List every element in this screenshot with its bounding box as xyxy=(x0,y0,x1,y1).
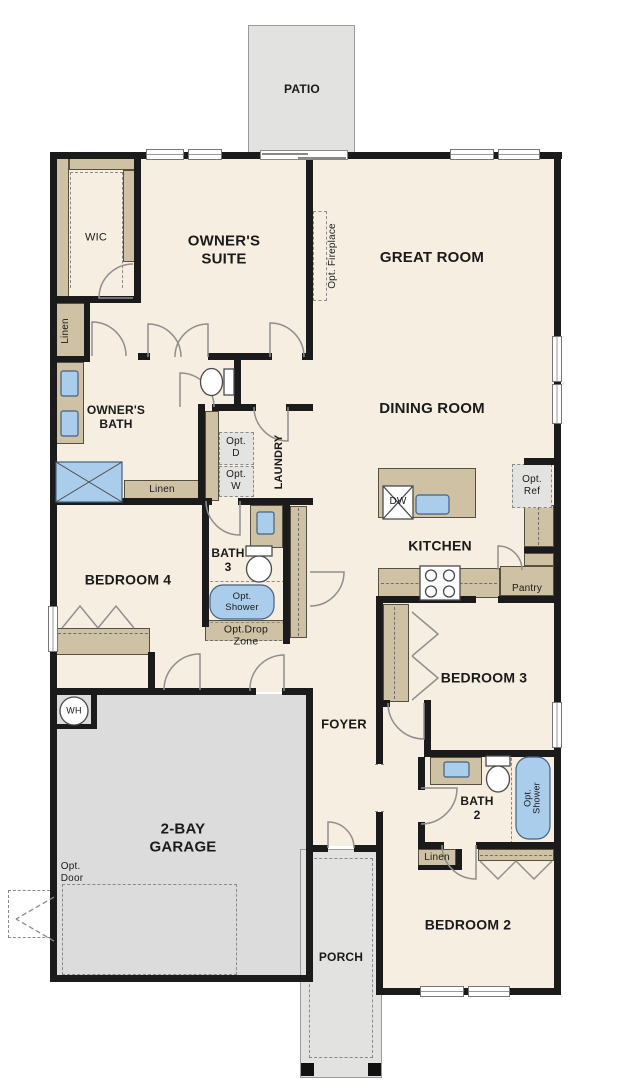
bifold-doors xyxy=(412,612,438,700)
sink xyxy=(257,512,274,534)
door-swing xyxy=(498,546,522,570)
opt-door-label: Opt. Door xyxy=(61,861,83,885)
toilet-tank xyxy=(246,546,272,556)
door-swing xyxy=(310,572,344,606)
great-room-label: GREAT ROOM xyxy=(380,249,484,267)
dishwasher-label: DW xyxy=(389,496,406,508)
toilet-tank xyxy=(224,369,234,395)
floor-plan: PATIO OWNER'S SUITE GREAT ROOM WIC Opt. … xyxy=(0,0,634,1090)
opt-shower3-label: Opt. Shower xyxy=(225,591,258,613)
burner xyxy=(444,570,455,581)
fixtures-overlay xyxy=(0,0,634,1090)
pantry-label: Pantry xyxy=(512,583,542,595)
opt-shower2-label: Opt. Shower xyxy=(524,782,543,814)
kitchen-label: KITCHEN xyxy=(408,538,472,555)
bifold-doors xyxy=(480,861,552,879)
burner xyxy=(426,586,437,597)
door-swing xyxy=(92,322,126,356)
door-swing xyxy=(270,323,304,357)
linen-bath2-label: Linen xyxy=(424,852,449,864)
bedroom3-label: BEDROOM 3 xyxy=(441,670,528,687)
door-swing xyxy=(164,654,200,690)
garage-label: 2-BAY GARAGE xyxy=(149,820,216,855)
water-heater-label: WH xyxy=(66,706,81,717)
door-swing xyxy=(328,822,354,848)
door-swing xyxy=(421,788,457,824)
door-swing xyxy=(99,264,133,298)
toilet-bowl xyxy=(487,766,510,792)
linen-bath-label: Linen xyxy=(149,484,174,496)
opt-fireplace-label: Opt. Fireplace xyxy=(328,223,339,289)
owners-bath-label: OWNER'S BATH xyxy=(87,403,145,431)
door-swing xyxy=(388,703,424,739)
bifold-doors xyxy=(62,606,134,628)
patio-label: PATIO xyxy=(284,82,320,96)
opt-door-swing xyxy=(16,897,54,941)
bath3-label: BATH 3 xyxy=(211,546,244,574)
burner xyxy=(426,570,437,581)
toilet-bowl xyxy=(247,556,272,582)
sink xyxy=(61,411,78,436)
bedroom2-label: BEDROOM 2 xyxy=(425,917,512,934)
door-swing xyxy=(206,501,240,535)
kitchen-sink xyxy=(416,495,449,514)
sink xyxy=(61,371,78,396)
laundry-label: LAUNDRY xyxy=(274,435,286,490)
toilet-tank xyxy=(486,756,510,766)
sink xyxy=(444,762,469,777)
toilet-bowl xyxy=(201,369,223,396)
porch-label: PORCH xyxy=(319,950,363,964)
opt-dryer-label: Opt. D xyxy=(226,436,246,460)
burner xyxy=(444,586,455,597)
dining-room-label: DINING ROOM xyxy=(379,400,485,418)
opt-washer-label: Opt. W xyxy=(226,469,246,493)
wic-label: WIC xyxy=(85,232,107,245)
blue-fixtures xyxy=(56,371,550,839)
foyer-label: FOYER xyxy=(321,716,367,731)
bath2-label: BATH 2 xyxy=(460,794,493,822)
opt-ref-label: Opt. Ref xyxy=(522,474,542,498)
bedroom4-label: BEDROOM 4 xyxy=(85,572,172,589)
owners-suite-label: OWNER'S SUITE xyxy=(188,232,260,267)
door-swing xyxy=(250,655,284,691)
patio-slider-lines xyxy=(262,154,346,158)
linen-hall-label: Linen xyxy=(61,318,72,343)
opt-drop-zone-label: Opt.Drop Zone xyxy=(224,624,268,649)
